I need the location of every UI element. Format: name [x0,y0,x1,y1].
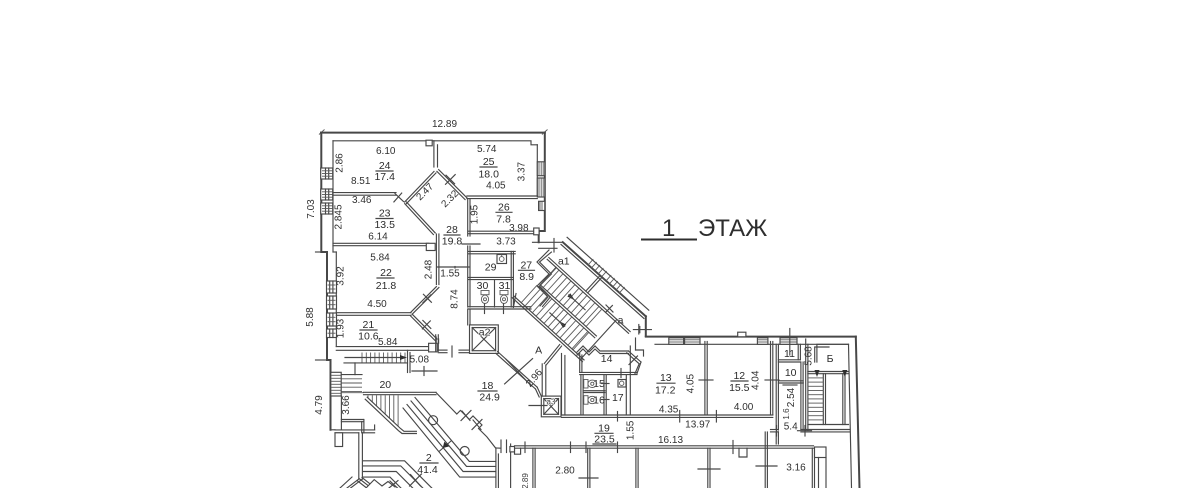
svg-text:5.08: 5.08 [410,354,430,365]
svg-text:41.4: 41.4 [417,464,438,476]
svg-text:2.48: 2.48 [424,259,435,279]
svg-text:14: 14 [601,353,613,365]
svg-text:3.92: 3.92 [336,266,347,286]
svg-text:4.50: 4.50 [367,299,387,310]
svg-text:25: 25 [483,156,495,168]
svg-text:29: 29 [485,261,497,273]
svg-text:16.13: 16.13 [658,435,683,446]
svg-text:3.73: 3.73 [496,236,516,247]
svg-text:18: 18 [482,380,494,392]
svg-text:а3: а3 [547,398,556,407]
svg-text:13.5: 13.5 [374,219,395,231]
svg-text:2.86: 2.86 [335,153,346,173]
svg-text:13.97: 13.97 [685,419,710,430]
svg-text:20: 20 [379,379,391,391]
svg-text:а2: а2 [479,327,491,339]
svg-text:12.89: 12.89 [432,119,457,130]
svg-text:4.79: 4.79 [314,395,325,415]
svg-text:5.84: 5.84 [370,253,390,264]
svg-text:2: 2 [426,452,432,464]
svg-text:2.89: 2.89 [521,473,530,488]
svg-text:3.98: 3.98 [509,223,529,234]
svg-text:23: 23 [379,208,391,220]
svg-text:15.5: 15.5 [729,382,750,394]
svg-text:2.54: 2.54 [786,387,797,407]
svg-text:4.00: 4.00 [734,402,754,413]
svg-text:1.6: 1.6 [782,408,791,420]
svg-text:А: А [535,345,542,357]
svg-text:26: 26 [498,201,510,213]
svg-text:28: 28 [446,224,458,236]
svg-text:21.8: 21.8 [376,280,397,292]
svg-text:10: 10 [785,367,797,379]
svg-text:3.46: 3.46 [352,195,372,206]
svg-text:17.4: 17.4 [374,171,395,183]
svg-text:5.88: 5.88 [305,307,316,327]
svg-text:10.6: 10.6 [358,331,379,343]
svg-text:7.03: 7.03 [306,199,317,219]
svg-text:18.0: 18.0 [478,169,499,181]
svg-text:1: 1 [662,215,675,242]
svg-text:11: 11 [784,348,795,360]
svg-text:3.37: 3.37 [517,161,528,181]
svg-text:1.95: 1.95 [470,204,481,224]
svg-text:21: 21 [363,319,375,331]
svg-text:16: 16 [593,394,605,406]
svg-text:4.05: 4.05 [685,373,696,393]
svg-text:12: 12 [733,370,745,382]
svg-text:2.845: 2.845 [334,204,345,229]
svg-text:8.51: 8.51 [351,176,371,187]
svg-text:6.14: 6.14 [368,232,388,243]
svg-text:3.16: 3.16 [786,463,806,474]
svg-text:5.74: 5.74 [477,144,497,155]
svg-text:4.35: 4.35 [659,404,679,415]
svg-text:4.04: 4.04 [750,370,761,390]
svg-text:ЭТАЖ: ЭТАЖ [698,215,767,242]
svg-text:27: 27 [520,259,532,271]
svg-text:22: 22 [380,267,392,279]
svg-text:8.9: 8.9 [519,271,534,283]
svg-text:4.05: 4.05 [486,181,506,192]
svg-text:3.66: 3.66 [341,395,352,415]
svg-text:19.8: 19.8 [442,236,463,248]
svg-text:8.74: 8.74 [450,289,461,309]
svg-text:17: 17 [612,392,624,404]
svg-text:Б: Б [827,353,834,365]
svg-text:а1: а1 [558,256,570,268]
svg-text:1.93: 1.93 [336,318,347,338]
svg-text:13: 13 [660,372,672,384]
svg-text:1.55: 1.55 [626,420,637,440]
svg-text:17.2: 17.2 [655,384,676,396]
svg-text:2.80: 2.80 [555,466,575,477]
svg-text:5.4: 5.4 [784,422,798,433]
svg-text:6.10: 6.10 [376,146,396,157]
svg-text:24.9: 24.9 [479,392,500,404]
svg-text:1.55: 1.55 [440,269,460,280]
